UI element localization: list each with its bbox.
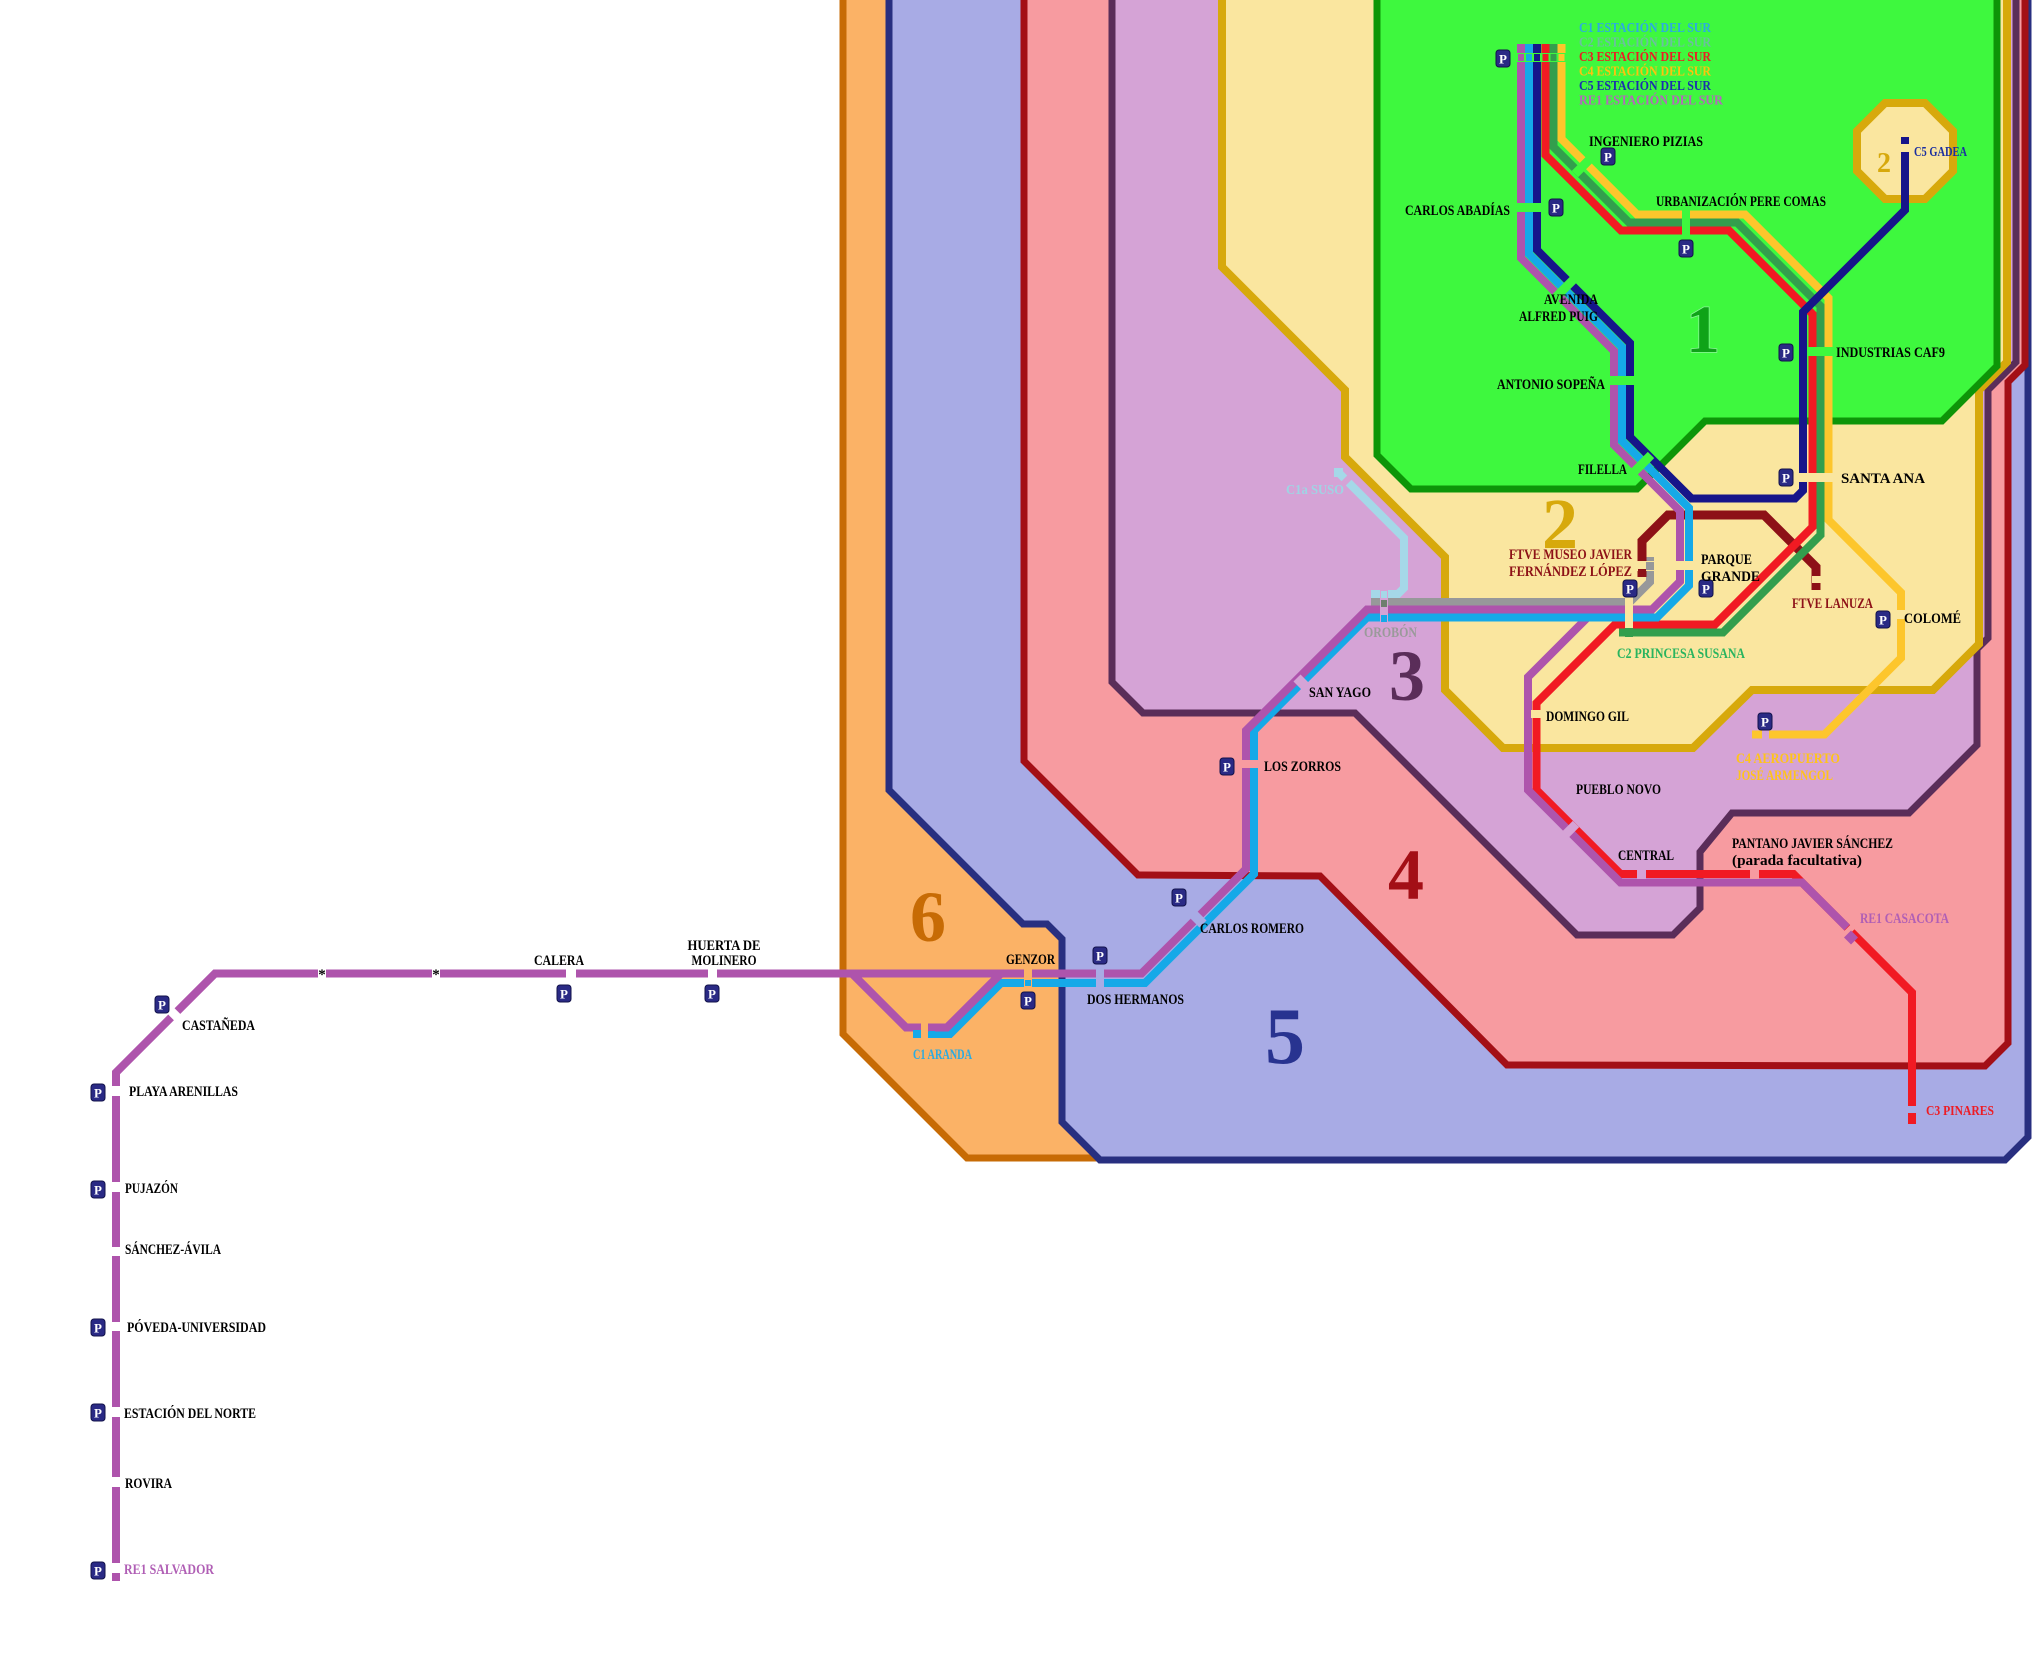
svg-text:(parada facultativa): (parada facultativa) <box>1732 853 1862 869</box>
svg-text:SAN YAGO: SAN YAGO <box>1309 685 1371 701</box>
svg-text:PLAYA ARENILLAS: PLAYA ARENILLAS <box>129 1084 238 1100</box>
svg-text:C1 ARANDA: C1 ARANDA <box>913 1047 972 1063</box>
svg-text:C3 ESTACIÓN DEL SUR: C3 ESTACIÓN DEL SUR <box>1579 48 1712 65</box>
svg-text:CARLOS ABADÍAS: CARLOS ABADÍAS <box>1405 202 1510 219</box>
svg-text:LOS ZORROS: LOS ZORROS <box>1264 759 1341 775</box>
svg-text:C2 PRINCESA SUSANA: C2 PRINCESA SUSANA <box>1617 646 1745 662</box>
svg-text:SÁNCHEZ-ÁVILA: SÁNCHEZ-ÁVILA <box>125 1241 221 1258</box>
svg-text:RE1 SALVADOR: RE1 SALVADOR <box>124 1562 214 1578</box>
svg-text:CALERA: CALERA <box>534 953 584 969</box>
svg-text:OROBÓN: OROBÓN <box>1364 624 1417 641</box>
svg-text:ALFRED PUIG: ALFRED PUIG <box>1519 309 1598 325</box>
svg-text:PARQUE: PARQUE <box>1701 552 1752 568</box>
svg-text:INDUSTRIAS CAF9: INDUSTRIAS CAF9 <box>1836 345 1945 361</box>
svg-text:C2 ESTACIÓN DEL SUR: C2 ESTACIÓN DEL SUR <box>1579 34 1712 51</box>
svg-text:PANTANO JAVIER SÁNCHEZ: PANTANO JAVIER SÁNCHEZ <box>1732 835 1893 852</box>
svg-text:COLOMÉ: COLOMÉ <box>1904 610 1961 627</box>
svg-text:PUEBLO NOVO: PUEBLO NOVO <box>1576 782 1661 798</box>
svg-text:C5 ESTACIÓN DEL SUR: C5 ESTACIÓN DEL SUR <box>1579 77 1712 94</box>
svg-text:GENZOR: GENZOR <box>1006 952 1055 968</box>
svg-text:*: * <box>318 967 326 983</box>
svg-text:C4 AEROPUERTO: C4 AEROPUERTO <box>1736 751 1840 767</box>
svg-text:INGENIERO PIZIAS: INGENIERO PIZIAS <box>1589 134 1703 150</box>
svg-text:5: 5 <box>1265 993 1305 1081</box>
svg-text:C1a SUSO: C1a SUSO <box>1286 483 1344 498</box>
svg-text:AVENIDA: AVENIDA <box>1544 292 1598 308</box>
svg-text:PUJAZÓN: PUJAZÓN <box>125 1180 178 1197</box>
svg-text:DOMINGO GIL: DOMINGO GIL <box>1546 709 1629 725</box>
svg-text:FTVE LANUZA: FTVE LANUZA <box>1792 596 1873 612</box>
svg-text:FILELLA: FILELLA <box>1578 462 1627 478</box>
svg-text:PÓVEDA-UNIVERSIDAD: PÓVEDA-UNIVERSIDAD <box>127 1319 266 1336</box>
svg-text:HUERTA DE: HUERTA DE <box>688 938 761 954</box>
svg-text:CARLOS ROMERO: CARLOS ROMERO <box>1200 921 1304 937</box>
svg-text:6: 6 <box>910 877 946 957</box>
svg-text:ROVIRA: ROVIRA <box>125 1476 172 1492</box>
svg-text:C1 ESTACIÓN DEL SUR: C1 ESTACIÓN DEL SUR <box>1579 19 1712 36</box>
svg-text:4: 4 <box>1388 835 1424 915</box>
svg-text:RE1 CASACOTA: RE1 CASACOTA <box>1860 911 1949 927</box>
svg-text:FERNÁNDEZ LÓPEZ: FERNÁNDEZ LÓPEZ <box>1509 563 1632 580</box>
svg-text:ANTONIO SOPEÑA: ANTONIO SOPEÑA <box>1497 375 1605 393</box>
svg-text:C3 PINARES: C3 PINARES <box>1926 1104 1994 1119</box>
svg-text:DOS HERMANOS: DOS HERMANOS <box>1087 992 1184 1008</box>
svg-text:1: 1 <box>1686 291 1720 367</box>
svg-text:FTVE MUSEO JAVIER: FTVE MUSEO JAVIER <box>1509 547 1632 563</box>
svg-text:CASTAÑEDA: CASTAÑEDA <box>182 1016 255 1034</box>
svg-text:URBANIZACIÓN PERE COMAS: URBANIZACIÓN PERE COMAS <box>1656 193 1826 210</box>
svg-text:SANTA ANA: SANTA ANA <box>1841 471 1925 487</box>
svg-text:RE1 ESTACIÓN DEL SUR: RE1 ESTACIÓN DEL SUR <box>1579 92 1724 109</box>
svg-text:C5 GADEA: C5 GADEA <box>1914 145 1968 160</box>
svg-text:*: * <box>432 967 440 983</box>
svg-text:C4 ESTACIÓN DEL SUR: C4 ESTACIÓN DEL SUR <box>1579 63 1712 80</box>
svg-text:2: 2 <box>1877 148 1891 179</box>
svg-text:3: 3 <box>1389 636 1425 716</box>
svg-text:CENTRAL: CENTRAL <box>1618 848 1674 864</box>
svg-text:MOLINERO: MOLINERO <box>692 953 757 969</box>
svg-text:GRANDE: GRANDE <box>1701 569 1760 585</box>
svg-text:JOSÉ ARMENGOL: JOSÉ ARMENGOL <box>1736 767 1833 784</box>
svg-text:ESTACIÓN DEL NORTE: ESTACIÓN DEL NORTE <box>124 1405 256 1422</box>
